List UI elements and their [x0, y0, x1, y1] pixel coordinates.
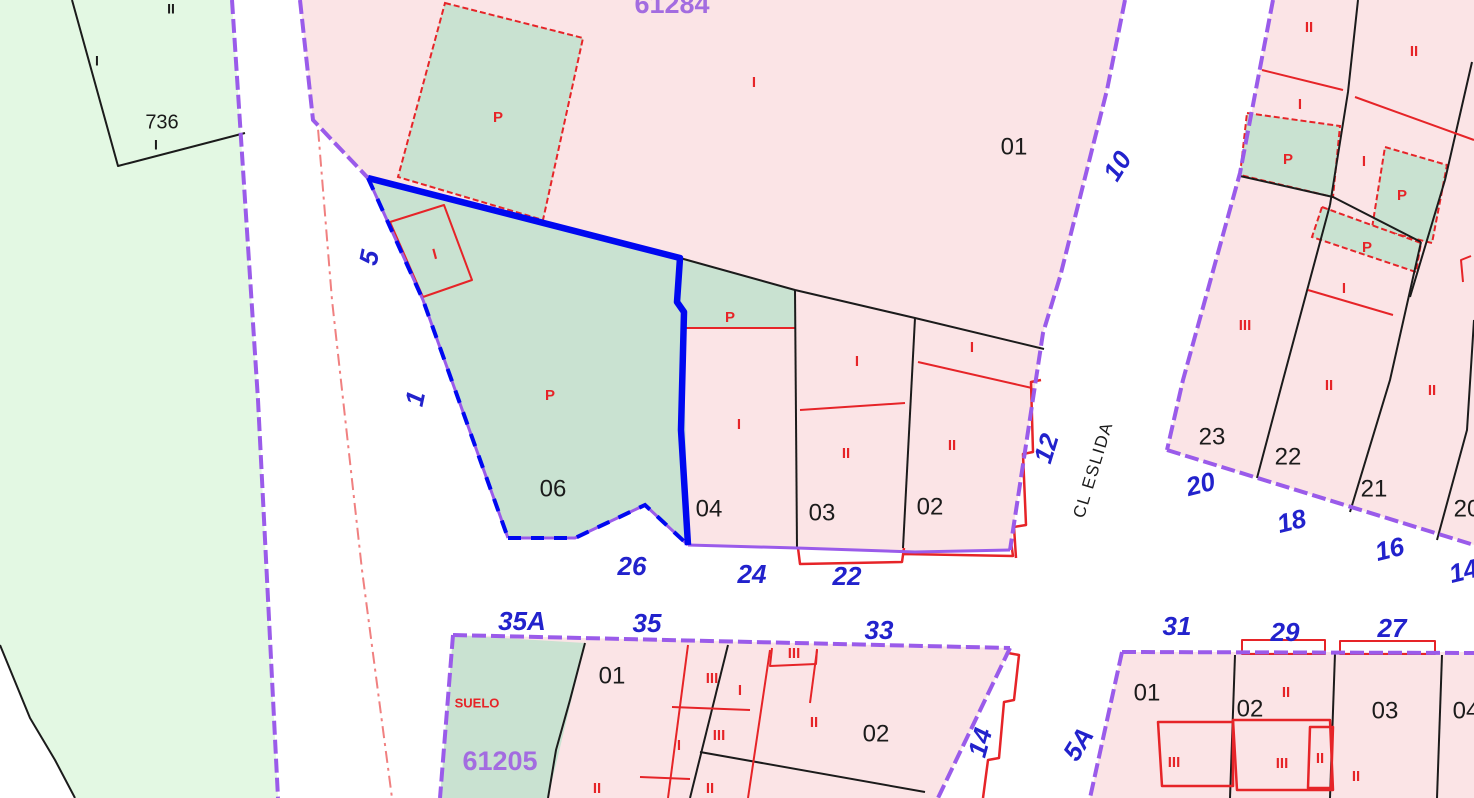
- floors-ii-br-3: II: [1352, 768, 1360, 785]
- street-number-35: 35: [633, 608, 662, 638]
- floors-iii-bc-2: III: [788, 645, 801, 662]
- street-number-35a: 35A: [498, 606, 546, 636]
- parcel-20-label: 20: [1454, 495, 1474, 522]
- floors-i-parcel-01: I: [752, 74, 756, 91]
- floors-ii-bc-3: II: [593, 780, 601, 797]
- parcel-01-bc-label: 01: [599, 662, 626, 689]
- rural-class-ii: II: [167, 1, 175, 17]
- parcel-01-top-label: 01: [1001, 133, 1028, 160]
- parcel-04-label: 04: [696, 495, 723, 522]
- rural-class-i-1: I: [95, 53, 99, 69]
- parcel-03-label: 03: [809, 499, 836, 526]
- floors-i-rt-2: I: [1362, 153, 1366, 170]
- cadastral-map[interactable]: 736 II I I 01 06 04 03 02 23 22 21 20 01…: [0, 0, 1474, 798]
- floors-ii-parcel-22: II: [1325, 377, 1333, 394]
- floors-iii-br-2: III: [1276, 755, 1289, 772]
- street-number-27: 27: [1377, 613, 1408, 643]
- floors-ii-bc-2: II: [706, 780, 714, 797]
- subparcel-p-rt-1: P: [1283, 151, 1293, 168]
- floors-ii-br-2: II: [1316, 750, 1324, 767]
- street-number-33: 33: [865, 615, 894, 645]
- rural-class-i-2: I: [154, 137, 158, 153]
- floors-i-parcel-02: I: [970, 339, 974, 356]
- floors-i-rt-1: I: [1298, 96, 1302, 113]
- street-number-24: 24: [737, 559, 767, 589]
- floors-i-bc-2: I: [677, 737, 681, 754]
- floors-iii-bc-1: III: [706, 670, 719, 687]
- parcel-06-label: 06: [540, 475, 567, 502]
- floors-ii-bc-1: II: [810, 714, 818, 731]
- parcel-02-br-label: 02: [1237, 695, 1264, 722]
- floors-ii-rt-1: II: [1305, 19, 1313, 36]
- parcel-02-label: 02: [917, 493, 944, 520]
- subparcel-p-label-04: P: [725, 309, 735, 326]
- subparcel-p-rt-3: P: [1362, 239, 1372, 256]
- parcel-02-bc-label: 02: [863, 720, 890, 747]
- block-number-61205: 61205: [462, 746, 537, 776]
- parcel-22-label: 22: [1275, 443, 1302, 470]
- map-canvas[interactable]: 736 II I I 01 06 04 03 02 23 22 21 20 01…: [0, 0, 1474, 798]
- floors-iii-bc-3: III: [713, 727, 726, 744]
- street-number-22: 22: [832, 561, 862, 591]
- floors-i-rt-3: I: [1342, 280, 1346, 297]
- parcel-03-br-label: 03: [1372, 697, 1399, 724]
- rural-area-736[interactable]: [0, 0, 278, 798]
- floors-ii-parcel-03: II: [842, 445, 850, 462]
- floors-i-parcel-04: I: [737, 416, 741, 433]
- street-number-31: 31: [1163, 611, 1192, 641]
- subparcel-p-label-06: P: [545, 387, 555, 404]
- subparcel-p-label-1: P: [493, 109, 503, 126]
- parcel-23-label: 23: [1199, 423, 1226, 450]
- floors-ii-br-1: II: [1282, 684, 1290, 701]
- street-number-29: 29: [1270, 617, 1300, 647]
- block-number-61284: 61284: [634, 0, 709, 19]
- floors-iii-br-1: III: [1168, 754, 1181, 771]
- block-bottom-right-area[interactable]: [1090, 652, 1474, 798]
- subparcel-p-rt-2: P: [1397, 187, 1407, 204]
- parcel-01-br-label: 01: [1134, 679, 1161, 706]
- parcel-21-label: 21: [1361, 475, 1388, 502]
- street-number-26: 26: [617, 551, 647, 581]
- floors-ii-rt-2: II: [1410, 43, 1418, 60]
- rural-parcel-number: 736: [145, 111, 178, 133]
- suelo-label: SUELO: [455, 695, 500, 710]
- parcel-04-br-label: 04: [1453, 697, 1474, 724]
- floors-iii-rt: III: [1239, 317, 1252, 334]
- floors-ii-parcel-21: II: [1428, 382, 1436, 399]
- floors-ii-parcel-02: II: [948, 437, 956, 454]
- floors-i-bc-1: I: [738, 682, 742, 699]
- floors-i-parcel-03: I: [855, 353, 859, 370]
